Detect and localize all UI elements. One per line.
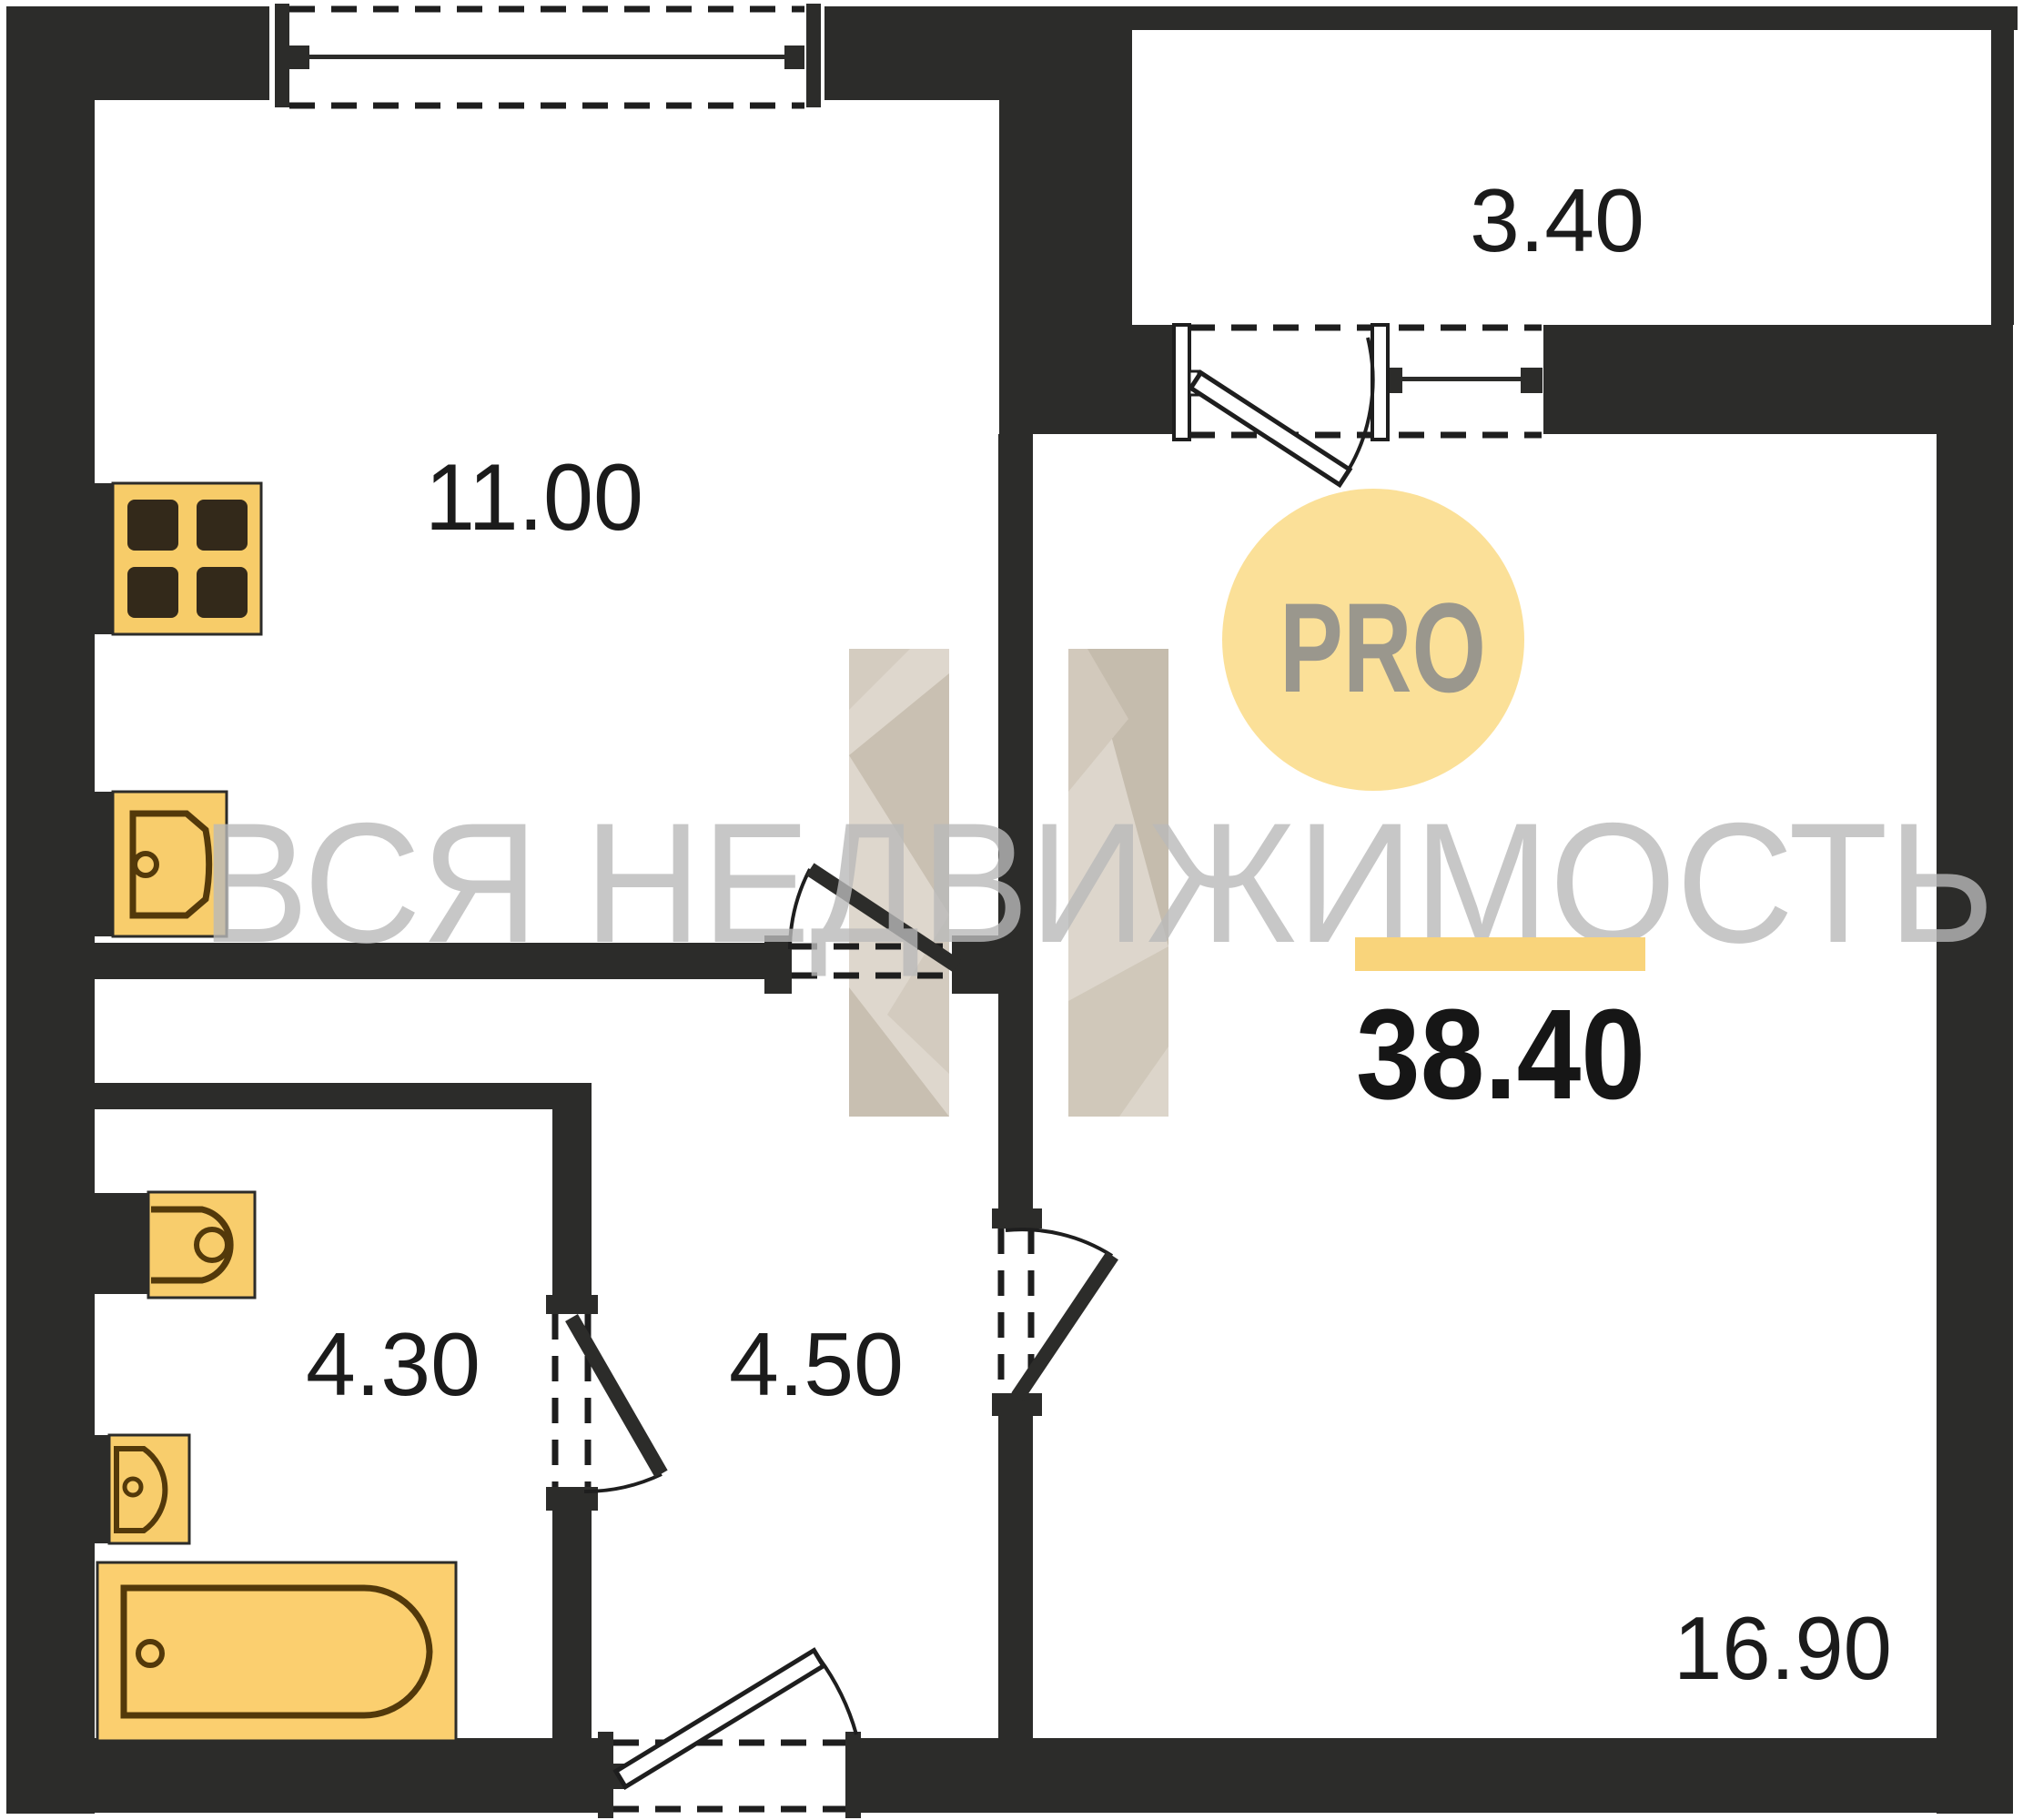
svg-text:11.00: 11.00 xyxy=(425,445,643,551)
svg-text:3.40: 3.40 xyxy=(1470,170,1644,270)
svg-text:PRO: PRO xyxy=(1280,576,1486,719)
svg-text:4.30: 4.30 xyxy=(306,1314,480,1414)
svg-text:38.40: 38.40 xyxy=(1356,982,1645,1126)
svg-text:ВСЯ НЕДВИЖИМОСТЬ: ВСЯ НЕДВИЖИМОСТЬ xyxy=(200,787,1995,978)
svg-text:4.50: 4.50 xyxy=(729,1314,904,1414)
svg-text:16.90: 16.90 xyxy=(1674,1598,1892,1698)
